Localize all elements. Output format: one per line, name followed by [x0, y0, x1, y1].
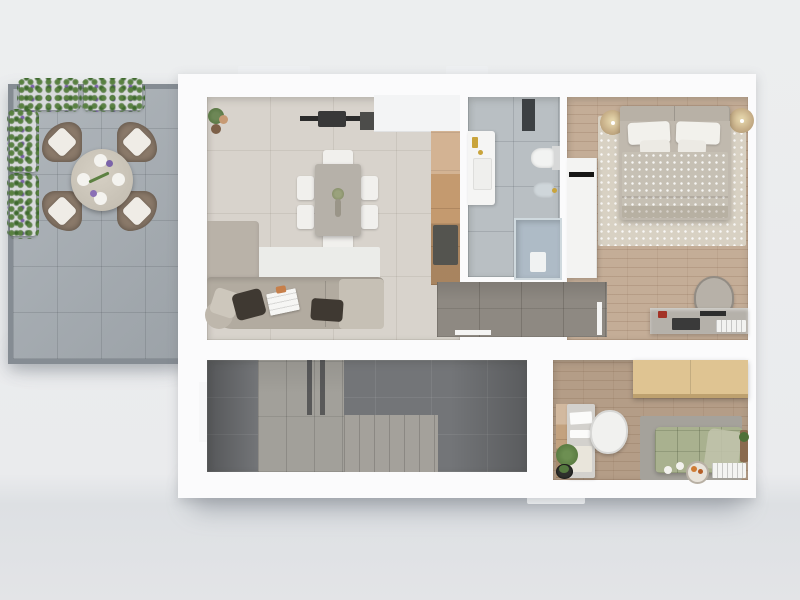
- stair-treads: [344, 415, 438, 472]
- bidet-gold-tap: [552, 188, 557, 193]
- desk-red-item: [658, 311, 667, 318]
- bed-headboard: [620, 106, 730, 121]
- wardrobe-handle: [569, 172, 594, 177]
- kitchen-dark-cabinet: [360, 112, 374, 130]
- bidet: [533, 182, 554, 198]
- kitchen-tall-cabinets: [374, 95, 460, 132]
- hallway-floor: [437, 282, 607, 337]
- dining-chair-left-1: [297, 176, 314, 200]
- tv-console: [318, 111, 346, 127]
- headboard-seam: [674, 106, 675, 121]
- dining-chair-right-2: [361, 205, 378, 229]
- sofa-end-seat: [339, 279, 384, 329]
- tray-orange-1: [691, 466, 697, 472]
- desk-laptop: [672, 318, 700, 330]
- office-plate-2: [676, 462, 684, 470]
- vanity-gold-bottle: [472, 137, 478, 148]
- table-plate-north: [94, 154, 107, 167]
- living-plant-pot: [211, 124, 221, 134]
- dining-centerpiece-vase: [335, 199, 341, 217]
- sofa-back-section: [207, 221, 259, 281]
- shower-tray-mat: [530, 252, 546, 272]
- office-book-stack: [712, 463, 746, 478]
- table-flower-purple-2: [90, 190, 97, 197]
- terrace-floor: [13, 89, 190, 359]
- utility-platform-vertical: [258, 360, 344, 472]
- desk-book-stack: [716, 320, 746, 332]
- wall-hung-toilet: [531, 148, 554, 168]
- sink-gold-tap: [478, 150, 483, 155]
- lavender-foliage-top-right: [81, 78, 145, 112]
- office-desk-paper-1: [570, 411, 593, 425]
- office-plant-small-top: [559, 465, 569, 473]
- living-plant-flower: [219, 115, 228, 124]
- chair-cushion: [46, 126, 77, 157]
- desk-dark-bar: [700, 311, 726, 316]
- dining-chair-right-1: [361, 176, 378, 200]
- bathroom-wall-shelf: [522, 99, 535, 131]
- duvet-fold-line: [622, 196, 728, 198]
- tray-orange-2: [698, 469, 703, 474]
- duvet-end-throw: [622, 206, 728, 218]
- table-flower-purple-1: [106, 160, 113, 167]
- sofa-pillow-dark-2: [310, 298, 343, 322]
- dining-chair-left-2: [297, 205, 314, 229]
- vanity-sink: [473, 158, 492, 190]
- chair-cushion: [46, 195, 77, 226]
- bedside-lamp-right: [729, 108, 754, 133]
- floor-plan-canvas: [0, 0, 800, 600]
- hallway-door-leaf-2: [597, 302, 602, 335]
- lavender-foliage-left-upper: [7, 109, 39, 175]
- stair-rail-1: [307, 360, 312, 415]
- chair-cushion: [121, 126, 152, 157]
- lavender-foliage-top-left: [17, 78, 81, 112]
- table-plate-east: [112, 173, 125, 186]
- utility-door: [199, 382, 207, 442]
- induction-hob: [433, 225, 458, 265]
- office-wardrobe-seam: [690, 360, 691, 394]
- lavender-foliage-left-lower: [7, 173, 39, 239]
- office-plant-large: [556, 444, 578, 466]
- table-plate-west: [77, 173, 90, 186]
- office-plate-1: [664, 466, 672, 474]
- office-desk-paper-2: [570, 430, 590, 438]
- office-chair: [590, 410, 628, 454]
- chair-cushion: [121, 195, 152, 226]
- stair-rail-2: [320, 360, 325, 415]
- side-table-plant: [739, 432, 749, 442]
- hallway-door-leaf-1: [455, 330, 491, 335]
